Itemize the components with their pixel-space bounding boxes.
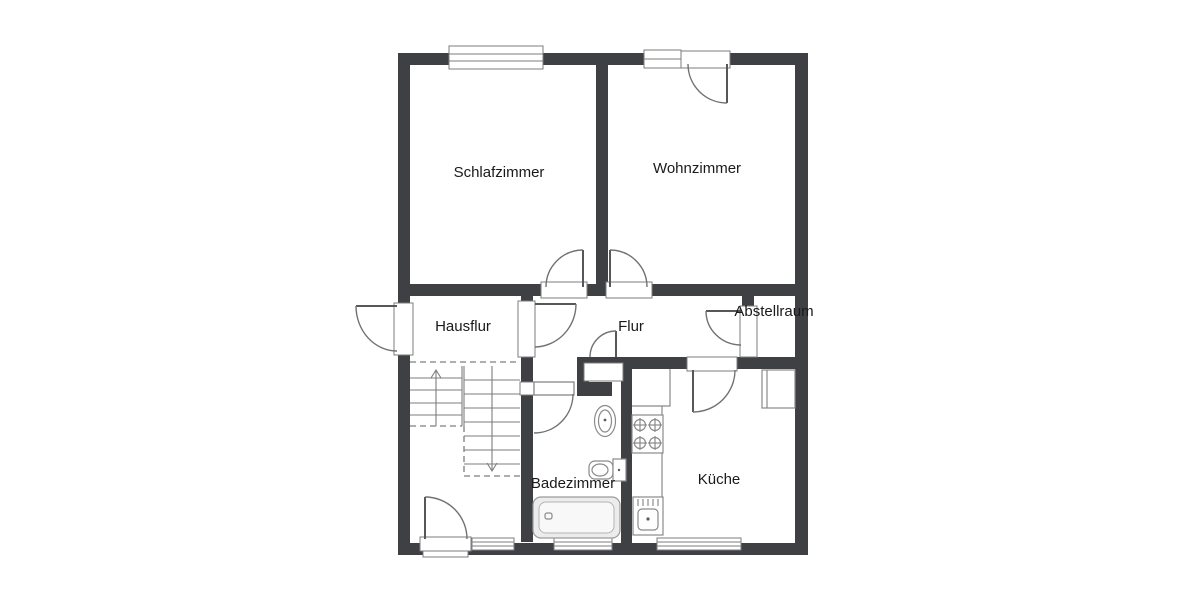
room-label-wohnzimmer: Wohnzimmer	[637, 161, 757, 177]
wall-bad-kueche	[621, 357, 632, 544]
room-label-flur: Flur	[571, 319, 691, 335]
kitchen-sink	[633, 497, 663, 535]
room-label-kueche: Küche	[659, 472, 779, 488]
kitchen-counter	[632, 369, 670, 406]
wall-corridor-band	[410, 284, 795, 296]
hausflur-flur-door	[518, 301, 576, 357]
toilet	[595, 406, 616, 437]
window-bottom-kueche	[657, 538, 741, 550]
window-wohnzimmer-top	[644, 50, 681, 68]
wohnzimmer-door	[606, 250, 652, 298]
stove	[632, 415, 663, 453]
floor-plan-drawing	[0, 0, 1200, 600]
kueche-door	[687, 357, 737, 412]
bathtub	[533, 497, 620, 538]
floor-plan: Schlafzimmer Wohnzimmer Hausflur Flur Ab…	[0, 0, 1200, 600]
stairhall-bottom-door	[420, 497, 471, 557]
badezimmer-door	[584, 331, 623, 381]
wall-outer-left-lower	[398, 355, 410, 555]
room-label-badezimmer: Badezimmer	[513, 476, 633, 492]
window-bottom-badezimmer	[554, 538, 612, 550]
room-label-hausflur: Hausflur	[403, 319, 523, 335]
window-schlafzimmer-top	[449, 46, 543, 69]
window-bottom-stairhall	[472, 538, 514, 550]
room-label-schlafzimmer: Schlafzimmer	[439, 165, 559, 181]
room-label-abstellraum: Abstellraum	[714, 304, 834, 320]
wall-bad-top-jog	[589, 382, 612, 396]
kitchen-cupboard	[762, 370, 795, 408]
wohnzimmer-entry-door	[681, 51, 730, 103]
wall-schlaf-wohn-divider	[596, 65, 608, 290]
wall-outer-left-upper	[398, 53, 410, 305]
staircase	[410, 362, 520, 476]
schlafzimmer-door	[541, 250, 587, 298]
